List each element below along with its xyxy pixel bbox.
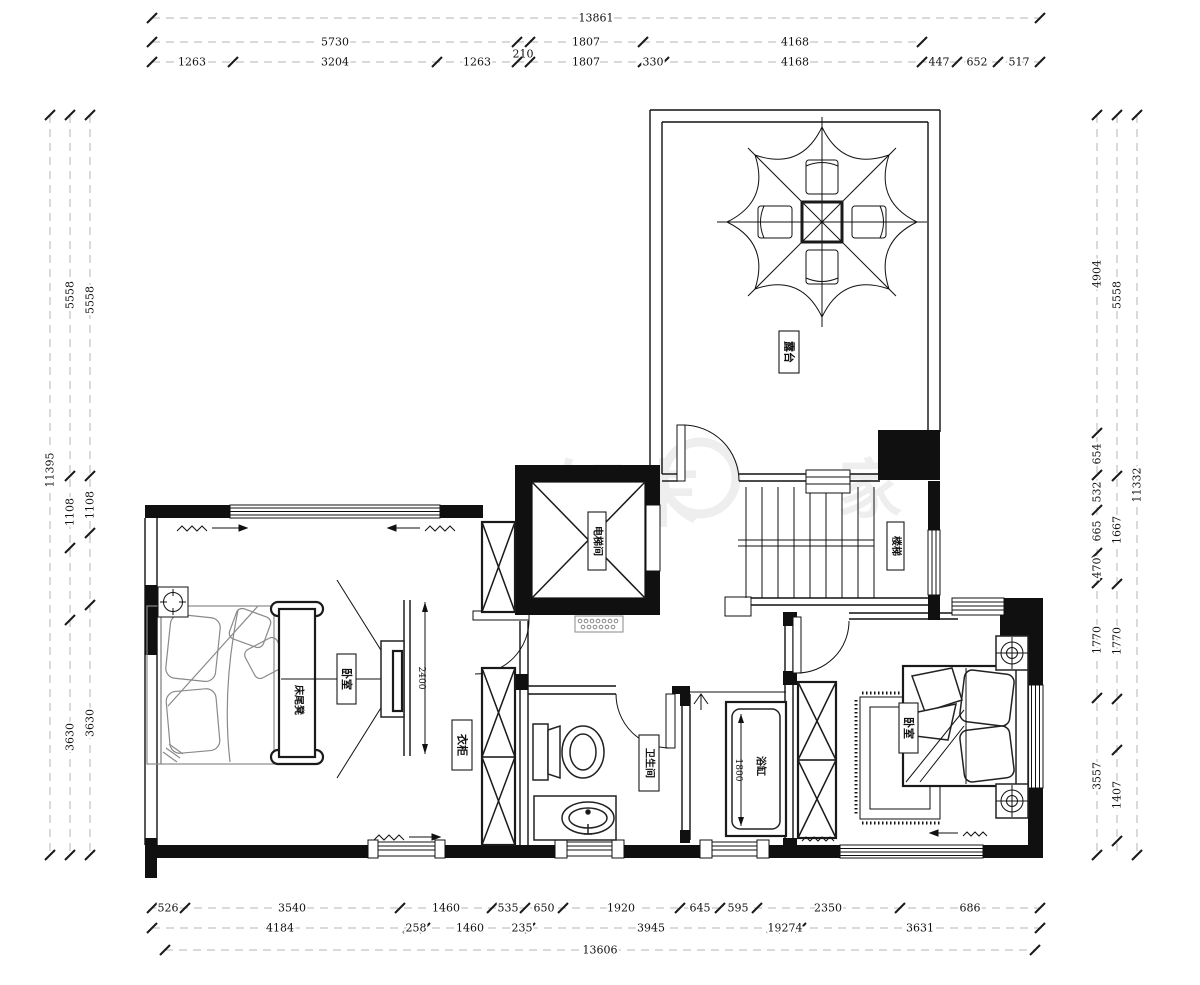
parasol xyxy=(717,117,927,327)
svg-text:5558: 5558 xyxy=(84,286,97,314)
svg-text:1770: 1770 xyxy=(1111,627,1124,655)
nightstand-bottom xyxy=(996,784,1028,818)
vanity-sink xyxy=(534,796,616,840)
svg-text:1108: 1108 xyxy=(64,498,77,526)
svg-text:258: 258 xyxy=(406,922,427,935)
svg-text:电梯间: 电梯间 xyxy=(592,526,605,556)
svg-text:3204: 3204 xyxy=(321,56,349,69)
svg-text:3945: 3945 xyxy=(637,922,665,935)
floorplan-canvas: 知末 家 13861573021018074168126332041263180… xyxy=(0,0,1200,985)
shower-arrow xyxy=(694,694,708,710)
svg-text:1460: 1460 xyxy=(456,922,484,935)
svg-text:665: 665 xyxy=(1091,521,1104,542)
svg-text:5558: 5558 xyxy=(64,281,77,309)
svg-text:1263: 1263 xyxy=(178,56,206,69)
svg-text:4168: 4168 xyxy=(781,56,809,69)
svg-text:1800: 1800 xyxy=(733,759,743,782)
svg-text:330: 330 xyxy=(643,56,664,69)
closet-column-bottom xyxy=(482,668,515,845)
svg-text:1460: 1460 xyxy=(432,902,460,915)
svg-text:5730: 5730 xyxy=(321,36,349,49)
bed-end-bench: 床尾凳 xyxy=(271,602,323,764)
svg-text:1667: 1667 xyxy=(1111,516,1124,544)
svg-text:13861: 13861 xyxy=(579,12,614,25)
svg-text:3630: 3630 xyxy=(84,709,97,737)
svg-text:3631: 3631 xyxy=(906,922,934,935)
tv-wall: 2400 xyxy=(381,600,428,756)
svg-text:470: 470 xyxy=(1091,558,1104,579)
svg-text:535: 535 xyxy=(498,902,519,915)
window-bedroom-left-bottom xyxy=(368,840,445,858)
svg-text:衣柜: 衣柜 xyxy=(456,734,470,756)
svg-text:卫生间: 卫生间 xyxy=(644,748,657,778)
svg-text:4904: 4904 xyxy=(1091,260,1104,288)
svg-text:235: 235 xyxy=(512,922,533,935)
wardrobe-label: 衣柜 xyxy=(452,720,472,770)
terrace-label: 露台 xyxy=(779,331,799,373)
svg-text:4168: 4168 xyxy=(781,36,809,49)
svg-text:517: 517 xyxy=(1009,56,1030,69)
svg-text:645: 645 xyxy=(690,902,711,915)
elevator-shaft: 电梯间 xyxy=(515,465,660,632)
elevator-door xyxy=(646,505,660,571)
svg-text:卧室: 卧室 xyxy=(340,668,354,690)
svg-text:686: 686 xyxy=(960,902,981,915)
ceiling-lamp xyxy=(158,587,188,617)
bedroom-left-label: 卧室 xyxy=(337,654,356,704)
window-bedroom-left-top xyxy=(230,505,440,518)
svg-text:447: 447 xyxy=(929,56,950,69)
stairs-label: 楼梯 xyxy=(887,522,904,570)
window-bedroom-right-side xyxy=(1028,685,1043,788)
bathroom-label: 卫生间 xyxy=(639,735,659,791)
bathtub-area: 1800 浴缸 xyxy=(694,694,786,836)
tv-screen xyxy=(393,651,402,711)
floor-plan-drawing: 知末 家 13861573021018074168126332041263180… xyxy=(0,0,1200,985)
svg-text:1263: 1263 xyxy=(463,56,491,69)
svg-text:楼梯: 楼梯 xyxy=(890,536,903,556)
svg-text:1770: 1770 xyxy=(1091,626,1104,654)
svg-text:2350: 2350 xyxy=(814,902,842,915)
svg-text:卧室: 卧室 xyxy=(902,717,916,739)
svg-text:595: 595 xyxy=(728,902,749,915)
svg-text:11395: 11395 xyxy=(44,453,57,488)
svg-text:1407: 1407 xyxy=(1111,781,1124,809)
nightstand-top xyxy=(996,636,1028,670)
svg-text:1108: 1108 xyxy=(84,491,97,519)
svg-text:652: 652 xyxy=(967,56,988,69)
svg-text:3540: 3540 xyxy=(278,902,306,915)
bedroom-right-label: 卧室 xyxy=(899,703,918,753)
svg-text:654: 654 xyxy=(1091,444,1104,465)
vent-grille xyxy=(575,616,623,632)
svg-text:3557: 3557 xyxy=(1091,762,1104,790)
window-bedroom-right-bottom xyxy=(840,845,983,858)
bed-left xyxy=(147,606,289,764)
svg-text:1807: 1807 xyxy=(572,36,600,49)
svg-text:2400: 2400 xyxy=(416,667,426,690)
terrace: 露台 xyxy=(717,117,927,373)
window-stairs-right xyxy=(928,530,940,595)
second-bedroom: 卧室 xyxy=(798,636,1028,838)
svg-text:11332: 11332 xyxy=(1131,468,1144,503)
svg-text:1807: 1807 xyxy=(572,56,600,69)
master-bedroom: 床尾凳 2400 卧室 衣柜 xyxy=(147,522,515,845)
bed-right xyxy=(903,662,1028,790)
svg-text:1920: 1920 xyxy=(607,902,635,915)
svg-text:3630: 3630 xyxy=(64,723,77,751)
svg-text:526: 526 xyxy=(158,902,179,915)
elevator-label: 电梯间 xyxy=(588,512,606,570)
bathroom: 卫生间 xyxy=(533,724,659,840)
svg-text:650: 650 xyxy=(534,902,555,915)
bedroom-right-door xyxy=(793,617,849,673)
wardrobe-column-right xyxy=(798,682,836,838)
svg-text:13606: 13606 xyxy=(583,944,618,957)
svg-text:浴缸: 浴缸 xyxy=(755,756,768,776)
svg-text:274: 274 xyxy=(782,922,803,935)
window-stair-strip xyxy=(952,598,1004,615)
svg-text:5558: 5558 xyxy=(1111,281,1124,309)
svg-text:532: 532 xyxy=(1091,482,1104,503)
window-bathroom-2 xyxy=(700,840,769,858)
closet-column-top xyxy=(482,522,515,612)
svg-text:床尾凳: 床尾凳 xyxy=(293,685,306,715)
svg-text:露台: 露台 xyxy=(783,341,797,363)
svg-text:210: 210 xyxy=(513,48,534,61)
svg-text:4184: 4184 xyxy=(266,922,294,935)
terrace-corner-wall xyxy=(878,430,940,480)
window-bathroom-1 xyxy=(555,840,624,858)
toilet xyxy=(533,724,604,780)
